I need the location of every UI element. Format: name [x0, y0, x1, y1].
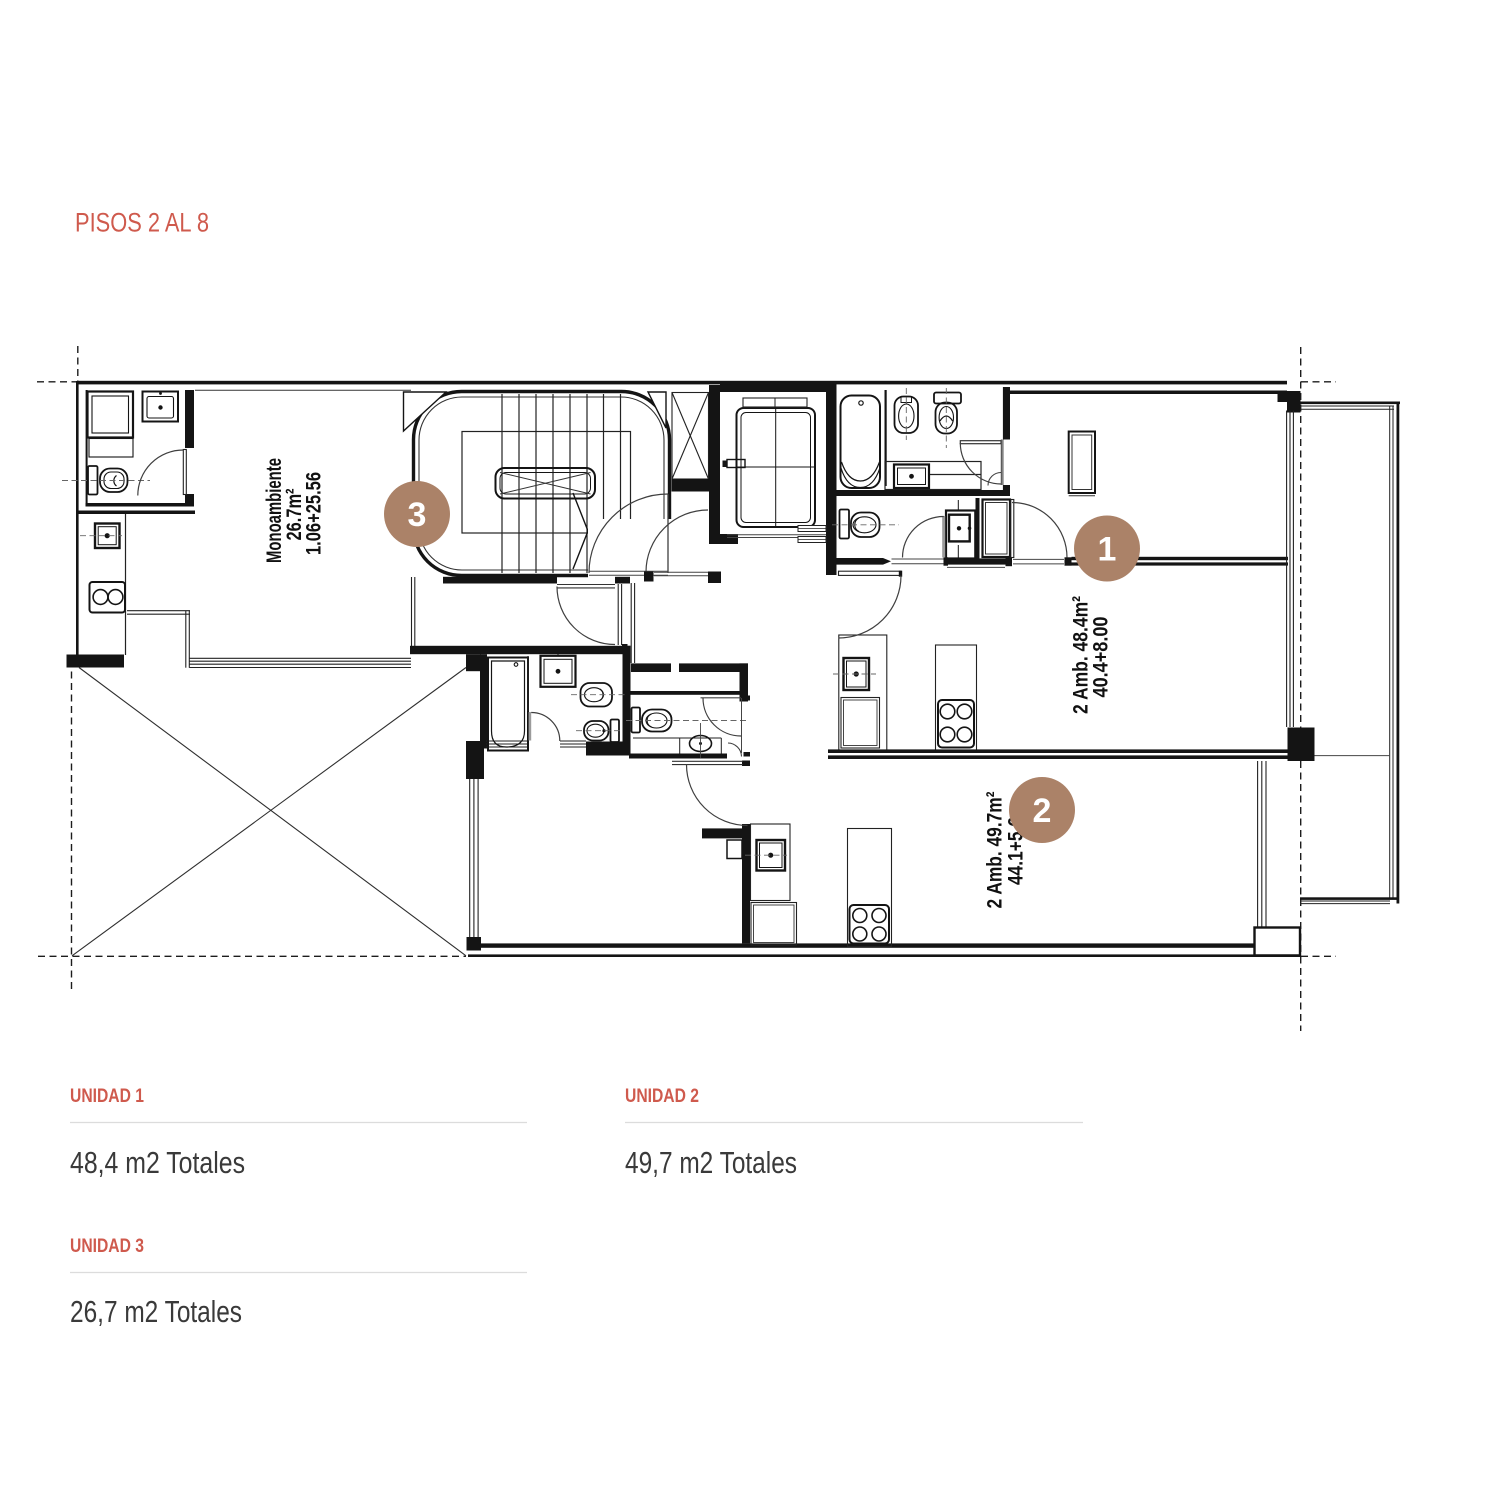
svg-text:UNIDAD 2: UNIDAD 2 [625, 1086, 699, 1107]
svg-text:1: 1 [1098, 531, 1117, 569]
svg-text:UNIDAD 3: UNIDAD 3 [70, 1236, 144, 1257]
svg-text:48,4 m2 Totales: 48,4 m2 Totales [70, 1145, 245, 1180]
svg-text:3: 3 [408, 496, 427, 534]
svg-text:UNIDAD 1: UNIDAD 1 [70, 1086, 144, 1107]
svg-text:PISOS 2 AL 8: PISOS 2 AL 8 [75, 208, 209, 238]
svg-text:26,7 m2 Totales: 26,7 m2 Totales [70, 1294, 242, 1329]
svg-text:40.4+8.00: 40.4+8.00 [1089, 616, 1113, 697]
svg-text:1.06+25.56: 1.06+25.56 [302, 472, 326, 555]
svg-text:49,7 m2 Totales: 49,7 m2 Totales [625, 1145, 797, 1180]
svg-text:2: 2 [1033, 792, 1052, 830]
